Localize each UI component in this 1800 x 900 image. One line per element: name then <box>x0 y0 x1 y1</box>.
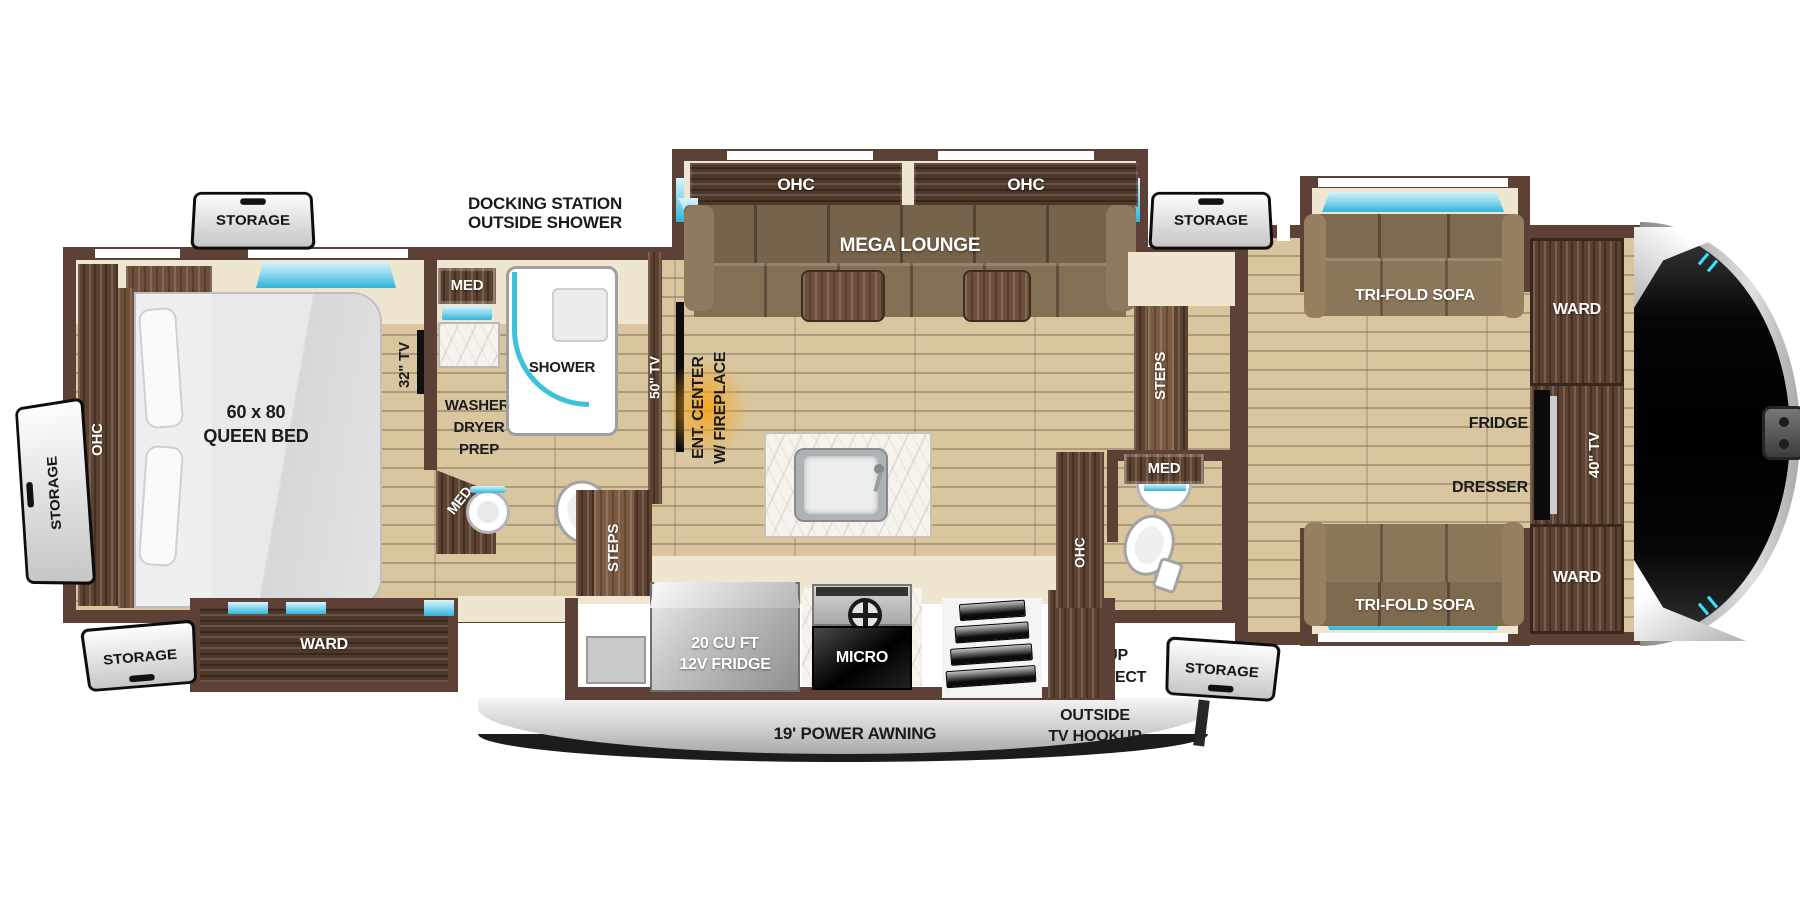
front-dresser-label: DRESSER <box>1418 478 1528 498</box>
storage-flap-bottom-right: STORAGE <box>1165 636 1281 702</box>
basement-door <box>586 636 646 684</box>
mega-lounge-label: MEGA LOUNGE <box>810 234 1010 258</box>
halfbath-wall-right <box>1222 450 1235 610</box>
stair-landing <box>1128 252 1248 306</box>
front-ward-bottom-label: WARD <box>1530 568 1624 588</box>
island-sink-basin <box>804 456 878 514</box>
bedroom-med-label: MED <box>438 268 496 304</box>
storage-flap-bottom-right-label: STORAGE <box>1185 659 1260 680</box>
halfbath-ohc-label: OHC <box>1062 508 1098 598</box>
door-step-2 <box>954 621 1029 643</box>
trifold-bottom-label: TRI-FOLD SOFA <box>1330 596 1500 616</box>
micro-label: MICRO <box>812 648 912 668</box>
galley-counter-strip-1 <box>802 588 812 686</box>
lounge-ohc-left-label: OHC <box>690 163 902 207</box>
range-vent <box>816 587 908 596</box>
lounge-table-1 <box>801 270 885 322</box>
bedroom-window-strip-1 <box>95 249 180 258</box>
front-slide-top-glass <box>1322 192 1504 212</box>
hitch-bolt-1 <box>1779 417 1789 427</box>
front-slide-top-window <box>1318 178 1508 187</box>
halfbath-sink-accent <box>1144 484 1186 491</box>
docking-station-note: DOCKING STATION <box>420 194 670 214</box>
storage-flap-bottom-left: STORAGE <box>80 619 197 692</box>
trifold-top-arm-left <box>1304 214 1326 318</box>
12v-fridge-label-1: 20 CU FT <box>660 634 790 654</box>
galley-counter-strip-2 <box>912 588 922 686</box>
washer-dryer-counter <box>438 322 500 368</box>
12v-fridge-label-2: 12V FRIDGE <box>660 655 790 675</box>
corner-sink-accent <box>470 486 506 493</box>
ward-end-accent <box>424 600 454 616</box>
storage-flap-top-right: STORAGE <box>1148 192 1273 250</box>
galley-wall-left <box>565 598 578 700</box>
bedroom-window-glass <box>256 262 396 288</box>
lounge-window-1 <box>727 151 873 160</box>
rv-floor-plan: DOCKING STATION OUTSIDE SHOWER 19' POWER… <box>0 0 1800 900</box>
front-tv-label: 40" TV <box>1582 398 1608 512</box>
front-steps-label: STEPS <box>1140 320 1182 432</box>
front-tv-frame <box>1550 396 1557 514</box>
bedroom-tv-label: 32" TV <box>396 326 414 404</box>
lounge-ohc-right-label: OHC <box>914 163 1138 207</box>
outside-tv-hookup-label: OUTSIDE <box>1010 706 1180 726</box>
bedroom-ward-label: WARD <box>190 634 458 656</box>
galley-wall-right <box>1102 598 1115 700</box>
door-step-1 <box>959 600 1026 622</box>
bedroom-window-strip-2 <box>248 249 408 258</box>
storage-flap-top-left: STORAGE <box>190 192 315 250</box>
door-step-3 <box>950 643 1033 666</box>
front-fridge-label: FRIDGE <box>1432 414 1528 434</box>
outside-tv-hookup-label2: TV HOOKUP <box>1010 727 1180 747</box>
bed-type-label: QUEEN BED <box>166 426 346 448</box>
storage-flap-side-left-label: STORAGE <box>43 455 64 530</box>
front-slide-bottom-window <box>1318 633 1508 642</box>
door-step-4 <box>946 665 1037 688</box>
trifold-top-back <box>1312 214 1518 258</box>
storage-flap-bottom-left-label: STORAGE <box>102 646 177 668</box>
trifold-bottom-arm-right <box>1502 522 1524 626</box>
hitch-bolt-2 <box>1779 439 1789 449</box>
entry-steps-label: STEPS <box>586 498 642 598</box>
shower-label: SHOWER <box>516 358 608 378</box>
lounge-window-2 <box>938 151 1094 160</box>
12v-fridge-top <box>650 582 800 608</box>
mega-lounge-arm-left <box>684 205 714 311</box>
lounge-table-2 <box>963 270 1031 322</box>
mega-lounge-seat <box>694 263 1126 317</box>
bedroom-tv <box>417 330 424 394</box>
hitch-pin-box <box>1762 406 1800 460</box>
shower-tray <box>552 288 608 342</box>
trifold-bottom-arm-left <box>1304 522 1326 626</box>
corner-sink-bowl <box>477 501 499 523</box>
ward-accent-2 <box>286 602 326 614</box>
storage-flap-side-left: STORAGE <box>15 397 96 585</box>
front-ward-top-label: WARD <box>1530 300 1624 320</box>
storage-flap-top-left-label: STORAGE <box>216 212 290 228</box>
front-tv <box>1534 390 1550 520</box>
trifold-top-label: TRI-FOLD SOFA <box>1330 286 1500 306</box>
halfbath-wall-left <box>1107 450 1118 542</box>
trifold-top-arm-right <box>1502 214 1524 318</box>
door-steps <box>941 597 1043 699</box>
storage-flap-top-right-label: STORAGE <box>1174 212 1248 228</box>
bed-size-label: 60 x 80 <box>166 402 346 424</box>
living-tv-label: 50" TV <box>648 318 662 438</box>
halfbath-med-label: MED <box>1124 454 1204 484</box>
front-entry-window <box>1277 185 1290 241</box>
ward-accent-1 <box>228 602 268 614</box>
awning-label: 19' POWER AWNING <box>720 724 990 744</box>
ent-center-label-2: W/ FIREPLACE <box>710 322 732 494</box>
washer-label-3: PREP <box>422 440 536 460</box>
ent-center-label-1: ENT. CENTER <box>688 322 710 494</box>
outside-shower-note: OUTSIDE SHOWER <box>420 213 670 233</box>
bath-divider-wall <box>424 260 437 470</box>
nose-cap <box>1634 222 1798 646</box>
bed-blanket <box>212 294 380 606</box>
bath-vanity-sink <box>442 306 492 320</box>
trifold-bottom-seat <box>1318 524 1512 582</box>
